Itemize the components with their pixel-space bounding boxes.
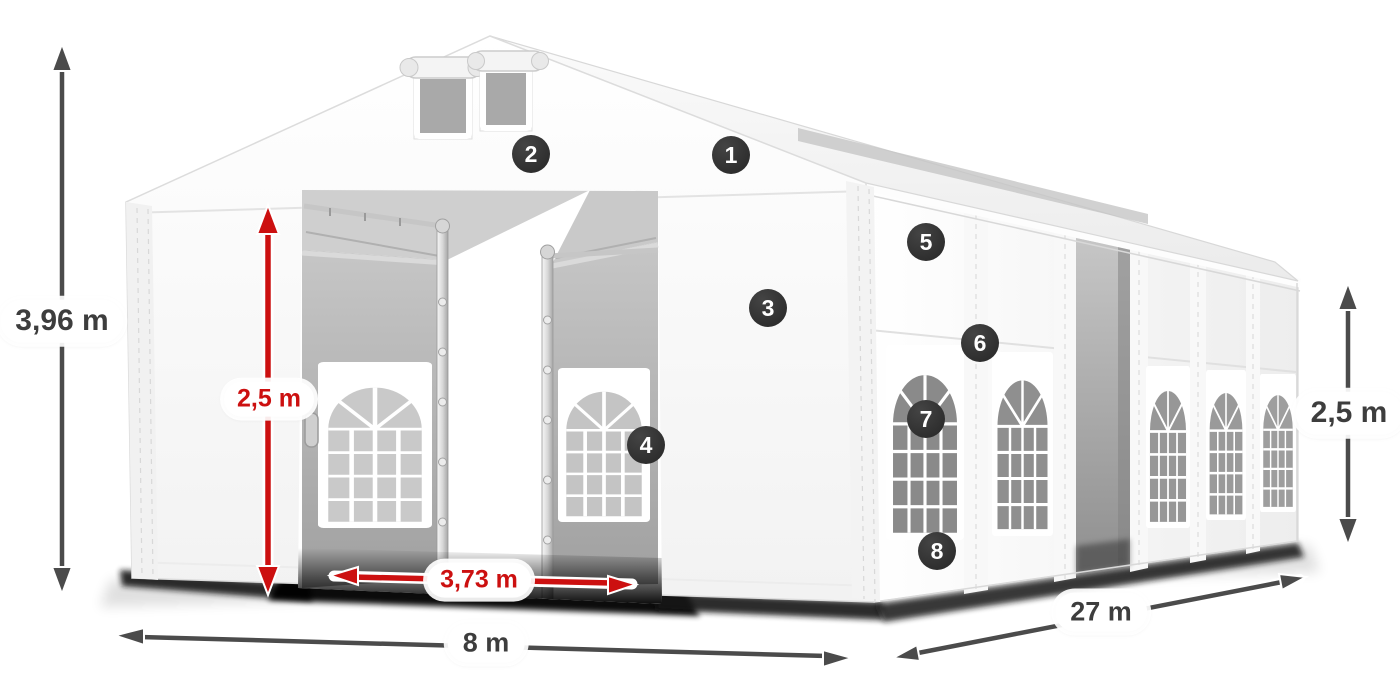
dimension-label-side-length: 27 m [1055, 592, 1147, 631]
callout-badge-2: 2 [512, 135, 550, 173]
dimension-label-wall-height: 2,5 m [1296, 392, 1400, 435]
tent-graphic [0, 0, 1400, 700]
callout-badge-1: 1 [712, 136, 750, 174]
callout-badge-7: 7 [907, 400, 945, 438]
callout-badge-8: 8 [918, 532, 956, 570]
tent-dimension-diagram: 3,96 m 2,5 m 3,73 m 8 m 27 m 2,5 m 1 2 3… [0, 0, 1400, 700]
side-wall-open-section [1076, 238, 1130, 574]
dimension-label-total-height: 3,96 m [0, 300, 123, 343]
dimension-label-entrance-height: 2,5 m [224, 382, 314, 417]
entrance-interior [298, 188, 664, 610]
dimension-label-entrance-width: 3,73 m [427, 563, 531, 598]
door-handle [305, 413, 318, 447]
dimension-label-front-width: 8 m [448, 623, 525, 662]
callout-badge-5: 5 [907, 223, 945, 261]
callout-badge-4: 4 [627, 426, 665, 464]
callout-badge-6: 6 [961, 324, 999, 362]
callout-badge-3: 3 [749, 289, 787, 327]
